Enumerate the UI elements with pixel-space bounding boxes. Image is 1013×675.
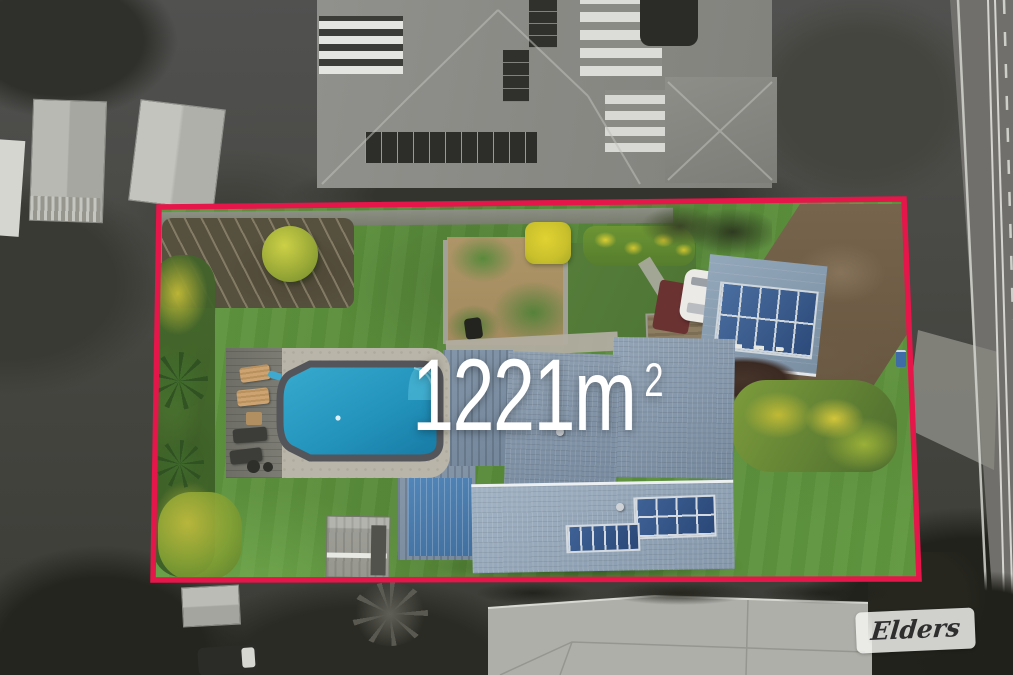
palm-tree: [352, 582, 428, 646]
round-bush: [262, 226, 318, 282]
neighbor-shed-roof: [181, 585, 241, 628]
pool-side-table: [246, 412, 262, 425]
elders-watermark: Elders: [855, 607, 976, 653]
water-feature: [640, 0, 698, 46]
garden-bed-right: [732, 380, 897, 472]
neighbor-carport-roof: [128, 99, 226, 211]
garden-path: [443, 240, 448, 344]
yellow-shrub: [525, 222, 571, 264]
sun-lounger: [236, 387, 269, 406]
house-solar-panel-array: [566, 523, 641, 554]
roof-vent: [616, 503, 624, 511]
house-solar-panel-array: [633, 495, 716, 540]
roof-skylight-strip: [605, 90, 665, 152]
roof-skylight-strip: [319, 16, 403, 74]
palm-plant: [156, 440, 204, 488]
garden-equipment: [464, 317, 484, 340]
roof-wing: [665, 77, 777, 183]
shed-door: [371, 525, 387, 575]
land-area-value: 1221m: [412, 338, 635, 452]
parked-vehicle: [197, 644, 259, 675]
sun-lounger: [232, 427, 267, 444]
elders-logo-text: Elders: [870, 613, 962, 646]
land-area-label: 1221m 2: [412, 338, 664, 452]
shrubs: [640, 200, 772, 258]
neighbor-house-roof-top: [317, 0, 772, 188]
neighbor-shed-roof: [29, 99, 107, 224]
land-area-superscript: 2: [644, 356, 663, 403]
roof-solar-panels: [529, 0, 557, 48]
vehicle-cab: [241, 647, 255, 668]
patio-roof: [408, 478, 472, 556]
wheelie-bin: [896, 350, 906, 367]
roof-solar-panels: [503, 50, 529, 102]
garden-shed: [325, 515, 390, 578]
pool-cleaner: [335, 415, 340, 420]
plant-pot: [247, 460, 260, 473]
aerial-photo: 1221m 2 Elders: [0, 0, 1013, 675]
yellow-shrub: [158, 492, 242, 580]
trees: [470, 578, 890, 608]
shed-ribbing: [30, 196, 101, 222]
palm-plant: [150, 352, 208, 410]
roof-solar-panel-row: [365, 132, 537, 163]
